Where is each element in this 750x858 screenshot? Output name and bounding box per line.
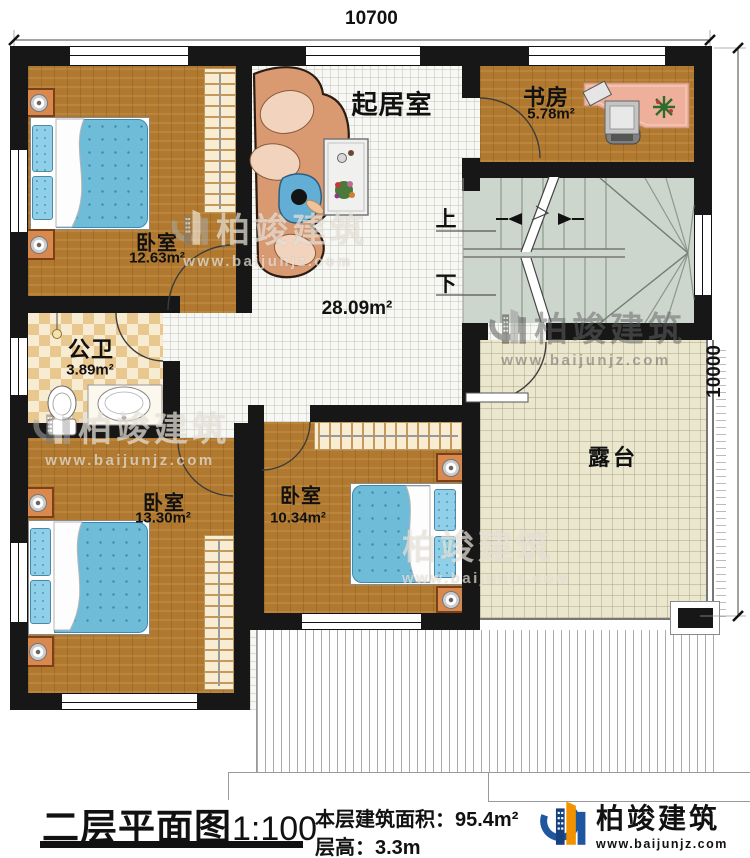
terrace-column [678,608,713,628]
floor-area-label: 本层建筑面积： [315,809,455,831]
living-room-area: 28.09m² [322,298,393,320]
roof-hatch [256,630,715,773]
window-left-bedroom3 [10,543,28,622]
floor-area-row: 本层建筑面积：95.4m² [315,803,518,832]
wall-bedroom2-top-right [310,405,465,422]
bedroom2-pillow [434,536,456,578]
company-url: www.baijunjz.com [596,837,728,851]
bedroom2-label: 卧室 [280,480,322,509]
frame-line [488,772,489,802]
bedroom3-area: 13.30m² [135,510,191,527]
window-left-bathroom [10,338,28,395]
plan-title-underline [40,841,303,848]
bedroom1-pillow [32,125,53,172]
bedroom1-mattress [56,119,148,228]
bedroom2-mattress [352,485,430,583]
wall-living-study-lower [462,158,480,191]
wall-bedroom2-right [462,340,480,630]
stairs-up-label: 上 [436,203,457,233]
bedroom3-pillow [30,580,51,624]
wall-stairs-bottom-left [462,323,488,340]
bathroom-label: 公卫 [68,332,114,364]
dimension-right: 10000 [704,345,726,398]
bedroom3-mattress [54,522,148,633]
floor-height-row: 层高：3.3m [315,831,421,858]
stairs-down-label: 下 [436,268,457,298]
bedroom2-nightstand [436,453,465,482]
bedroom1-pillow [32,176,53,220]
window-top-living [306,46,420,66]
window-bottom-bedroom3 [62,693,197,710]
bedroom2-area: 10.34m² [270,510,326,527]
wall-bathroom-bottom-left [10,423,175,438]
dimension-top: 10700 [345,8,398,30]
wall-right-upper [694,46,712,340]
floorplan-page: 起居室 28.09m² 书房 5.78m² 卧室 12.63m² 公卫 3.89… [0,0,750,858]
stairwell-floor [463,178,694,323]
frame-line [228,772,750,773]
window-right-stairs [694,215,712,295]
floor-height-label: 层高： [315,837,375,858]
bathroom-area: 3.89m² [66,362,114,379]
study-area: 5.78m² [527,106,575,123]
bedroom2-pillow [434,489,456,531]
company-logo-icon [536,796,588,852]
terrace-label: 露台 [588,440,638,472]
bedroom3-wardrobe-rail [218,539,220,686]
wall-bedroom2-left [248,405,264,630]
floor-height-value: 3.3m [375,837,421,858]
bedroom1-wardrobe-rail [219,72,221,209]
wall-bathroom-top [10,296,180,313]
window-left-bedroom1 [10,150,28,232]
terrace-floor [480,340,706,618]
window-bottom-bedroom2 [302,613,421,630]
window-top-study [529,46,665,66]
bedroom2-nightstand [436,586,465,613]
frame-line [228,772,229,800]
living-room-label: 起居室 [351,85,432,122]
bedroom3-pillow [30,528,51,576]
company-logo: 柏竣建筑 www.baijunjz.com [536,796,728,852]
bedroom2-wardrobe-rail [318,435,458,437]
wall-bedroom1-right [236,46,252,313]
company-name: 柏竣建筑 [596,797,728,837]
wall-study-bottom [480,162,712,178]
wall-stairs-bottom-right [546,323,712,340]
study-floor [480,66,694,162]
window-top-bedroom1 [70,46,188,66]
wall-living-study-upper [462,46,480,98]
bedroom1-area: 12.63m² [129,250,185,267]
floor-area-value: 95.4m² [455,809,518,831]
